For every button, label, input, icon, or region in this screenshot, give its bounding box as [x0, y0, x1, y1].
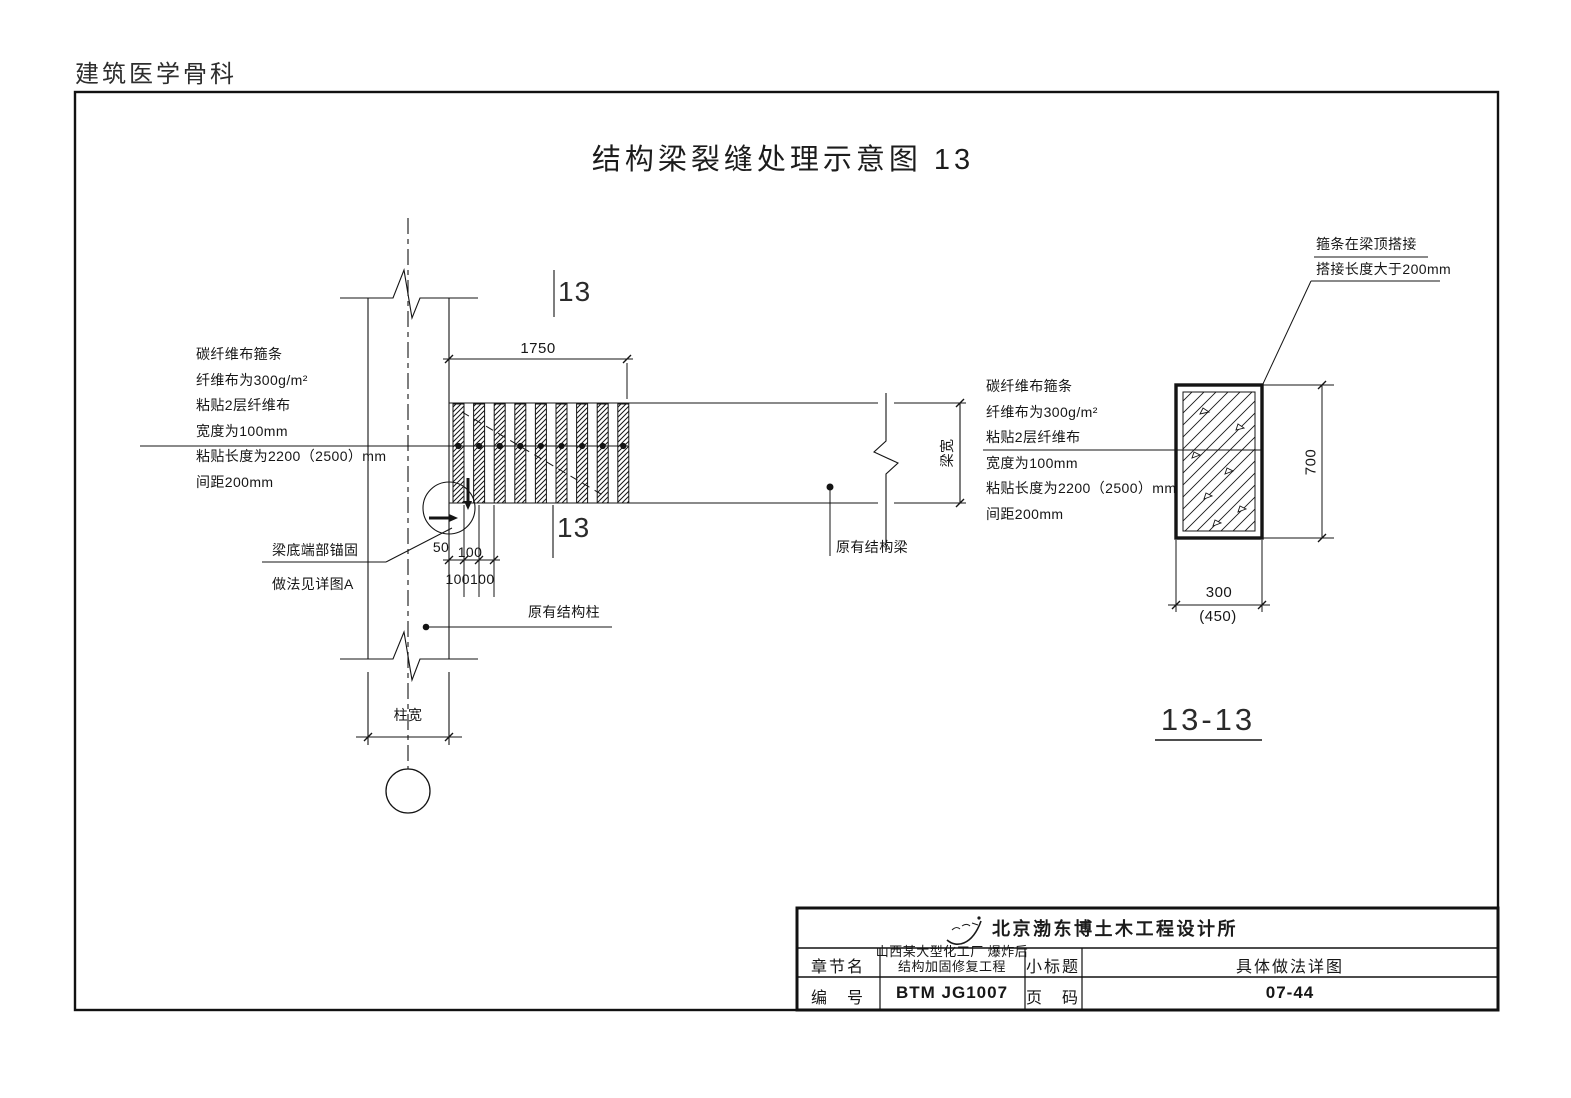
- note-line: 粘贴长度为2200（2500）mm: [196, 444, 386, 470]
- drawing-canvas: 建筑医学骨科: [0, 0, 1571, 1098]
- note-line: 粘贴2层纤维布: [196, 393, 386, 419]
- dim-col-width: 柱宽: [394, 705, 423, 725]
- project-name-line2: 结构加固修复工程: [898, 956, 1006, 975]
- cfrp-note-left: 碳纤维布箍条 纤维布为300g/m² 粘贴2层纤维布 宽度为100mm 粘贴长度…: [196, 342, 386, 496]
- note-line: 纤维布为300g/m²: [196, 368, 386, 394]
- chapter-label: 章节名: [811, 953, 865, 977]
- dim-50: 50: [433, 539, 449, 555]
- subtitle-value: 具体做法详图: [1236, 953, 1344, 977]
- drawing-title: 结构梁裂缝处理示意图 13: [592, 136, 974, 178]
- note-line: 间距200mm: [196, 470, 386, 496]
- page-value: 07-44: [1266, 983, 1314, 1003]
- anchor-note-line1: 梁底端部锚固: [272, 540, 358, 560]
- cfrp-note-right: 碳纤维布箍条 纤维布为300g/m² 粘贴2层纤维布 宽度为100mm 粘贴长度…: [986, 374, 1176, 528]
- dim-450: (450): [1199, 608, 1237, 625]
- dim-100-100: 100100: [445, 571, 494, 587]
- lap-note-line2: 搭接长度大于200mm: [1316, 259, 1451, 279]
- anchor-note-line2: 做法见详图A: [272, 574, 354, 594]
- section-marker-bottom: 13: [557, 512, 590, 544]
- section-marker-lines: [553, 270, 554, 558]
- break-symbol-top: [340, 270, 478, 318]
- lap-note-line1: 箍条在梁顶搭接: [1316, 234, 1417, 254]
- beam-label: 原有结构梁: [836, 537, 908, 557]
- note-line: 粘贴2层纤维布: [986, 425, 1176, 451]
- dim-beam-width: 梁宽: [937, 439, 957, 468]
- note-line: 碳纤维布箍条: [986, 374, 1176, 400]
- section-marker-top: 13: [558, 276, 591, 308]
- note-line: 碳纤维布箍条: [196, 342, 386, 368]
- subtitle-label: 小标题: [1026, 953, 1080, 977]
- grid-bubble: [386, 769, 430, 813]
- number-value: BTM JG1007: [896, 983, 1008, 1003]
- span-dimension: [443, 355, 633, 399]
- note-line: 粘贴长度为2200（2500）mm: [986, 476, 1176, 502]
- note-line: 间距200mm: [986, 502, 1176, 528]
- number-label: 编 号: [811, 984, 865, 1008]
- break-symbol-bottom: [340, 632, 478, 680]
- note-line: 纤维布为300g/m²: [986, 400, 1176, 426]
- beam-linework: [449, 393, 966, 552]
- dim-300: 300: [1206, 584, 1233, 601]
- dim-700: 700: [1303, 449, 1320, 476]
- note-line: 宽度为100mm: [196, 419, 386, 445]
- dim-1750: 1750: [520, 340, 555, 357]
- beam-break-symbol: [874, 393, 898, 552]
- column-label: 原有结构柱: [528, 602, 600, 622]
- dim-100: 100: [458, 544, 483, 560]
- company-name: 北京渤东博土木工程设计所: [992, 915, 1238, 941]
- page-label: 页 码: [1026, 984, 1080, 1008]
- note-line: 宽度为100mm: [986, 451, 1176, 477]
- section-label: 13-13: [1161, 702, 1255, 738]
- cfrp-strips: [453, 404, 629, 503]
